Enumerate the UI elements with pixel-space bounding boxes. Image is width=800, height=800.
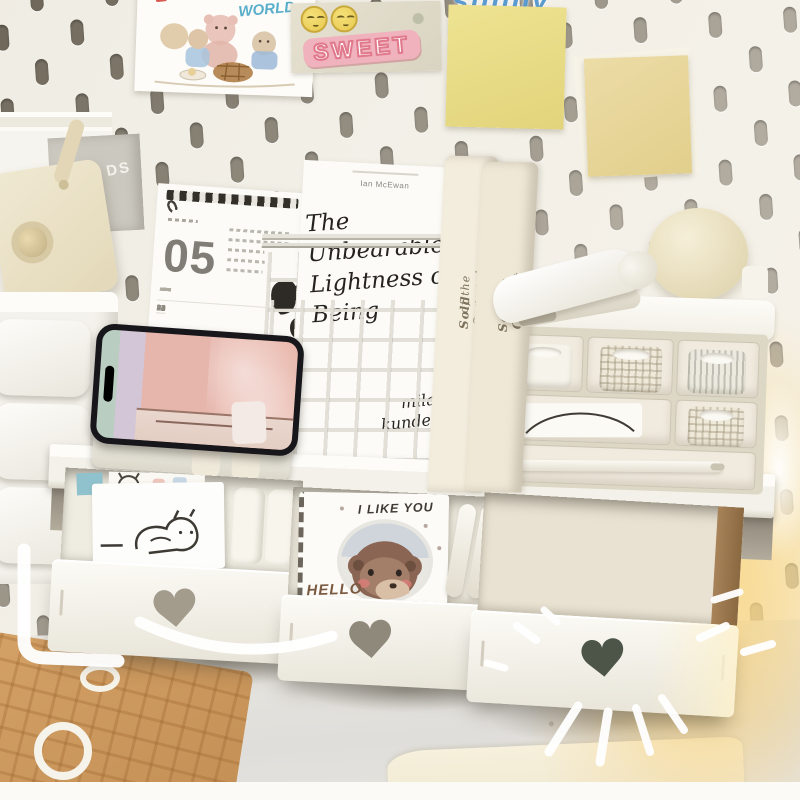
calendar-month: 05	[162, 228, 219, 286]
phone-screen	[96, 329, 299, 450]
pegboard-hole	[759, 193, 774, 220]
pegboard-hole	[609, 204, 624, 231]
pegboard-hole	[189, 122, 204, 149]
pegboard-hole	[708, 12, 723, 39]
pegboard-hole	[713, 85, 728, 112]
screen-photo-card	[231, 401, 266, 444]
pegboard-hole	[0, 24, 10, 51]
pegboard-hole	[748, 46, 763, 73]
washi-tape-roll	[490, 499, 492, 532]
desk-organizer-photo: WORLD SWEET sunny	[0, 0, 800, 800]
bear-card-caption: WORLD	[238, 0, 296, 20]
washi-tape-roll	[489, 499, 493, 532]
smiley-face-icon	[300, 6, 327, 33]
smiley-face-icon	[330, 5, 357, 32]
pegboard-hole	[783, 6, 798, 33]
memo-pad	[92, 482, 225, 570]
bear-picnic-illustration: WORLD	[134, 0, 315, 97]
pegboard-hole	[104, 0, 119, 6]
drawer-tray: I LIKE YOU HELLO	[288, 487, 499, 606]
shelf-letters: DS	[105, 159, 133, 180]
heart-cutout[interactable]	[144, 580, 205, 636]
pegboard-hole	[109, 53, 124, 80]
pegboard-hole	[414, 106, 429, 133]
sweet-sticker: SWEET	[290, 1, 441, 74]
pegboard-hole	[718, 159, 733, 186]
cord-ring	[34, 722, 92, 780]
small-tape-roll	[742, 266, 768, 298]
pegboard-hole	[534, 209, 549, 236]
drawer-tray	[60, 468, 303, 575]
cord-ring	[80, 664, 120, 692]
drawer-wood-side	[711, 506, 744, 625]
pegboard-hole	[633, 17, 648, 44]
pegboard-hole	[125, 275, 140, 302]
washi-tape-roll	[490, 499, 492, 532]
phone-on-stand	[87, 323, 309, 489]
pegboard-hole	[793, 154, 800, 181]
organizer-drawer[interactable]	[674, 400, 758, 449]
sticky-note-yellow	[445, 4, 566, 129]
white-pen	[512, 460, 722, 473]
mini-month-line	[226, 268, 262, 273]
spiral-ring	[166, 199, 180, 215]
pegboard-hole	[788, 80, 800, 107]
washi-tape-roll	[490, 499, 492, 532]
cream-camera	[0, 158, 120, 306]
drawer-tray	[478, 492, 745, 625]
washi-tape-roll	[489, 499, 493, 532]
calendar-date-cell: 31	[156, 300, 166, 314]
washi-tape-roll	[490, 499, 492, 532]
tower-top	[0, 292, 118, 312]
phone-notch	[103, 365, 114, 402]
book-top-rule	[353, 170, 419, 175]
pegboard-hole	[374, 72, 389, 99]
pegboard-hole	[0, 581, 11, 608]
bear-notebook: I LIKE YOU HELLO	[297, 492, 449, 606]
pulled-drawer-right[interactable]	[466, 492, 754, 720]
tape-roll-gingham	[687, 406, 744, 448]
sweet-label: SWEET	[312, 31, 411, 65]
pulled-drawer-left[interactable]	[47, 467, 309, 673]
pegboard-hole	[339, 111, 354, 138]
organizer-drawer[interactable]	[499, 443, 756, 490]
photo-border	[0, 782, 800, 800]
pegboard-hole	[668, 0, 683, 4]
drawer-front[interactable]	[277, 594, 497, 691]
organizer-drawer[interactable]	[676, 340, 760, 399]
washi-tape-roll	[489, 499, 493, 532]
pegboard-hole	[230, 156, 245, 183]
heart-cutout[interactable]	[340, 612, 401, 667]
drawer-front[interactable]	[466, 610, 739, 718]
pegboard-hole	[70, 19, 85, 46]
sticky-note-yellow	[584, 55, 692, 177]
book-spine-text: Sold Out of the moment	[456, 319, 469, 328]
drawer-front[interactable]	[47, 559, 302, 665]
pegboard-hole	[35, 59, 50, 86]
white-washi-roll	[230, 487, 265, 565]
smartphone[interactable]	[89, 323, 305, 457]
pegboard-hole	[29, 0, 44, 12]
doodle-card	[516, 403, 642, 437]
tower-drawer[interactable]	[0, 319, 91, 397]
cat-doodle	[92, 482, 225, 570]
pegboard-hole	[569, 170, 584, 197]
camera-lens	[8, 218, 56, 266]
heart-cutout[interactable]	[572, 629, 634, 685]
notebook-caption: I LIKE YOU	[358, 500, 436, 518]
washi-tape-roll	[489, 499, 493, 532]
pegboard-hole	[529, 135, 544, 162]
weekday-mark	[160, 287, 171, 291]
pegboard-hole	[754, 120, 769, 147]
pegboard-hole	[264, 117, 279, 144]
bear-picnic-sticker-card: WORLD	[134, 0, 315, 97]
wire-basket-rim	[262, 234, 469, 248]
sweet-banner: SWEET	[302, 29, 421, 68]
tape-roll-striped	[687, 349, 747, 395]
washi-tape-roll	[490, 499, 492, 532]
camera-button	[58, 179, 69, 190]
pegboard-hole	[594, 0, 609, 9]
washi-tape-roll	[489, 499, 493, 532]
calendar-header-mark	[168, 218, 198, 223]
